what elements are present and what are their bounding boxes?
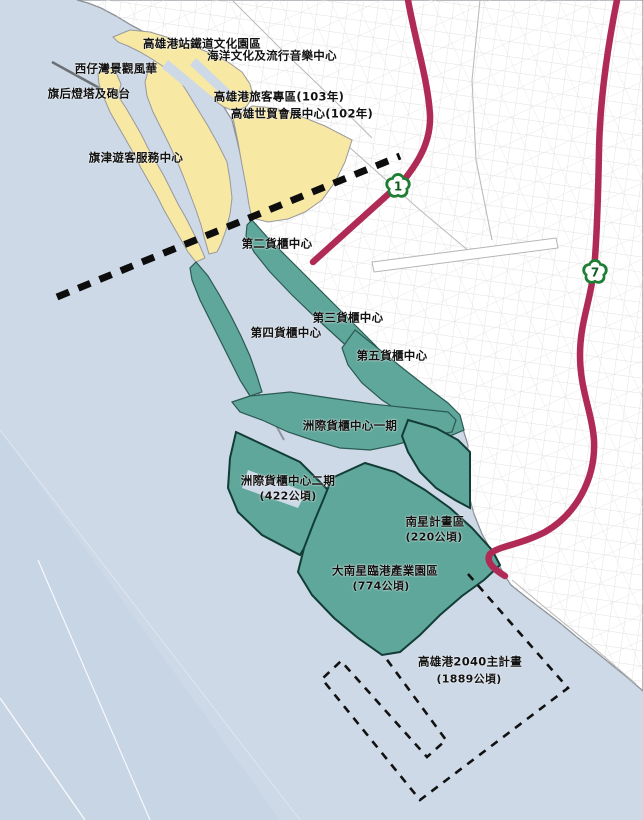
port-map-canvas: 1 7 [0, 0, 643, 820]
kaohsiung-port-map: 1 7 高雄港站鐵道文化園區 海洋文化及流行音樂中心 西仔灣景觀風華 旗后燈塔及… [0, 0, 643, 820]
highway-1-number: 1 [394, 180, 402, 194]
highway-7-number: 7 [591, 266, 599, 280]
